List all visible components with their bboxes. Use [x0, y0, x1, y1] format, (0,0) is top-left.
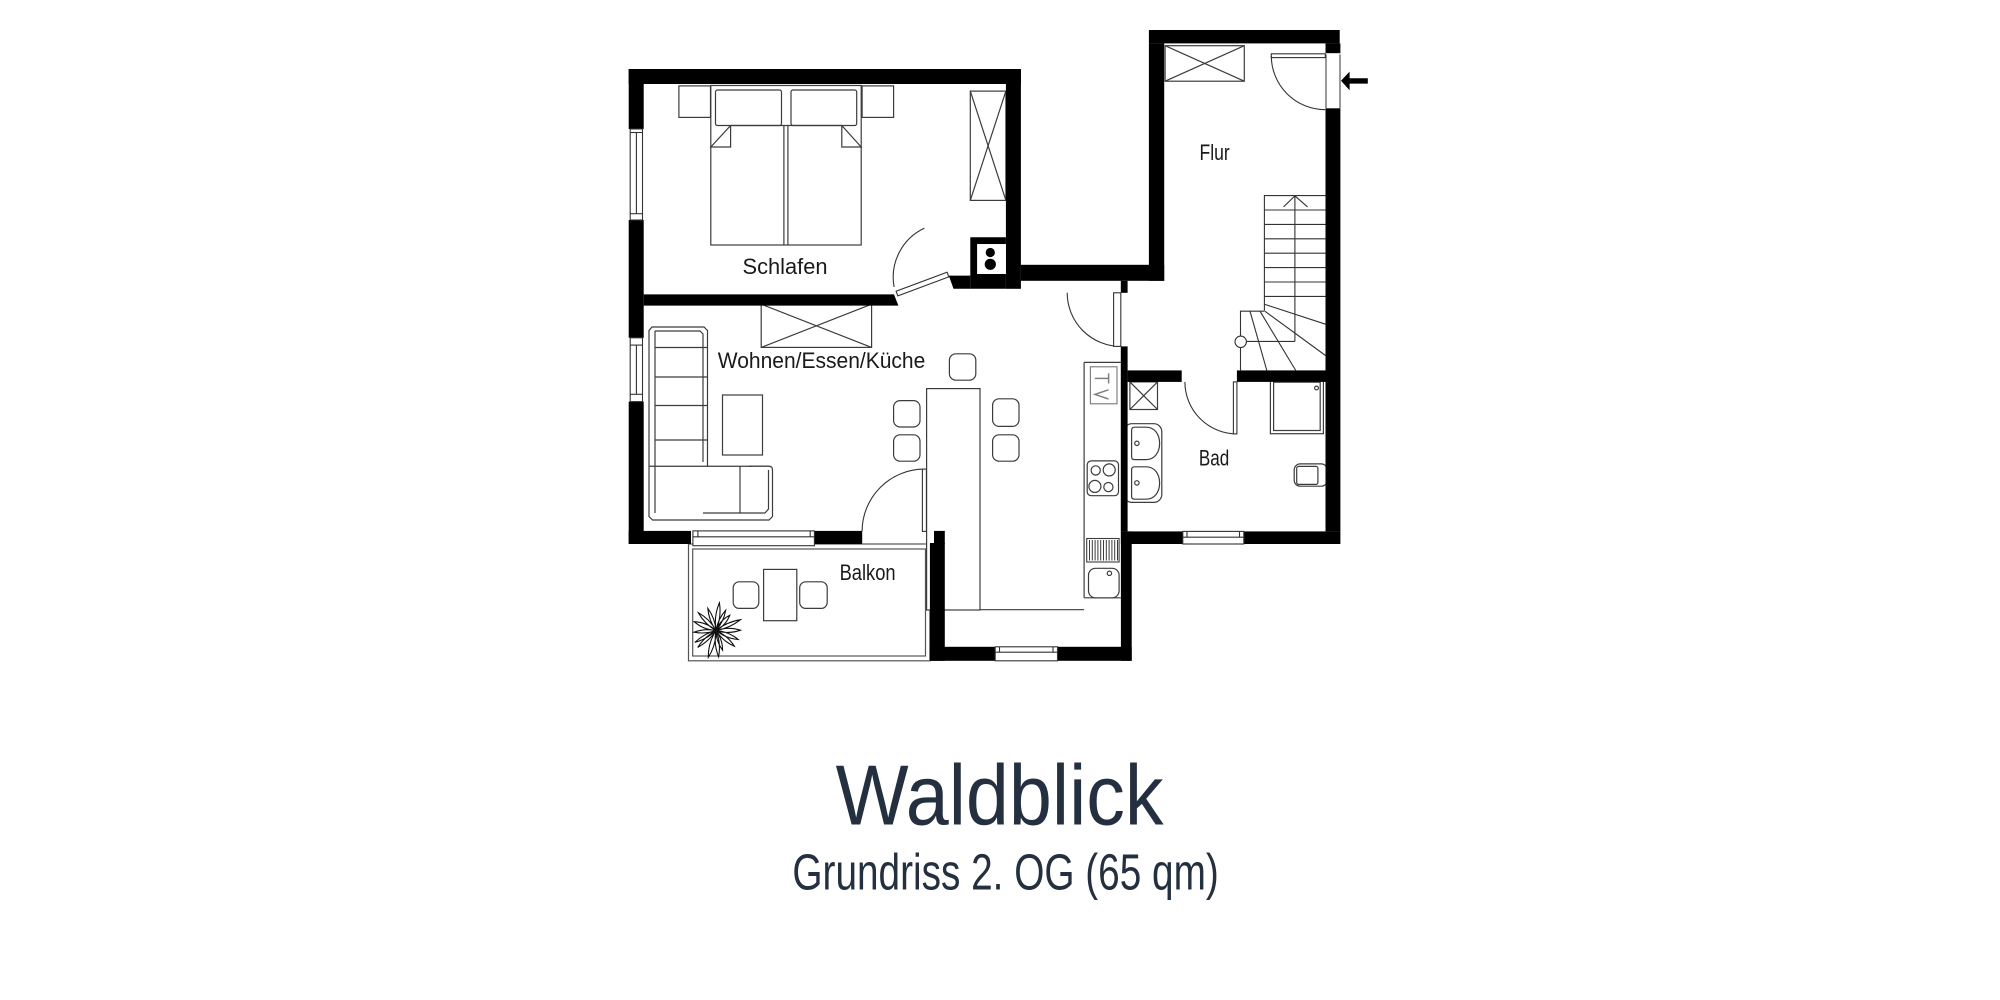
svg-text:Wohnen/Essen/Küche: Wohnen/Essen/Küche	[718, 348, 926, 373]
svg-text:Bad: Bad	[1199, 446, 1229, 471]
svg-text:Waldblick: Waldblick	[836, 748, 1164, 843]
svg-text:Balkon: Balkon	[840, 560, 896, 585]
svg-text:Grundriss 2. OG (65 qm): Grundriss 2. OG (65 qm)	[792, 844, 1218, 901]
svg-text:Flur: Flur	[1200, 140, 1230, 165]
svg-text:Schlafen: Schlafen	[743, 254, 828, 279]
